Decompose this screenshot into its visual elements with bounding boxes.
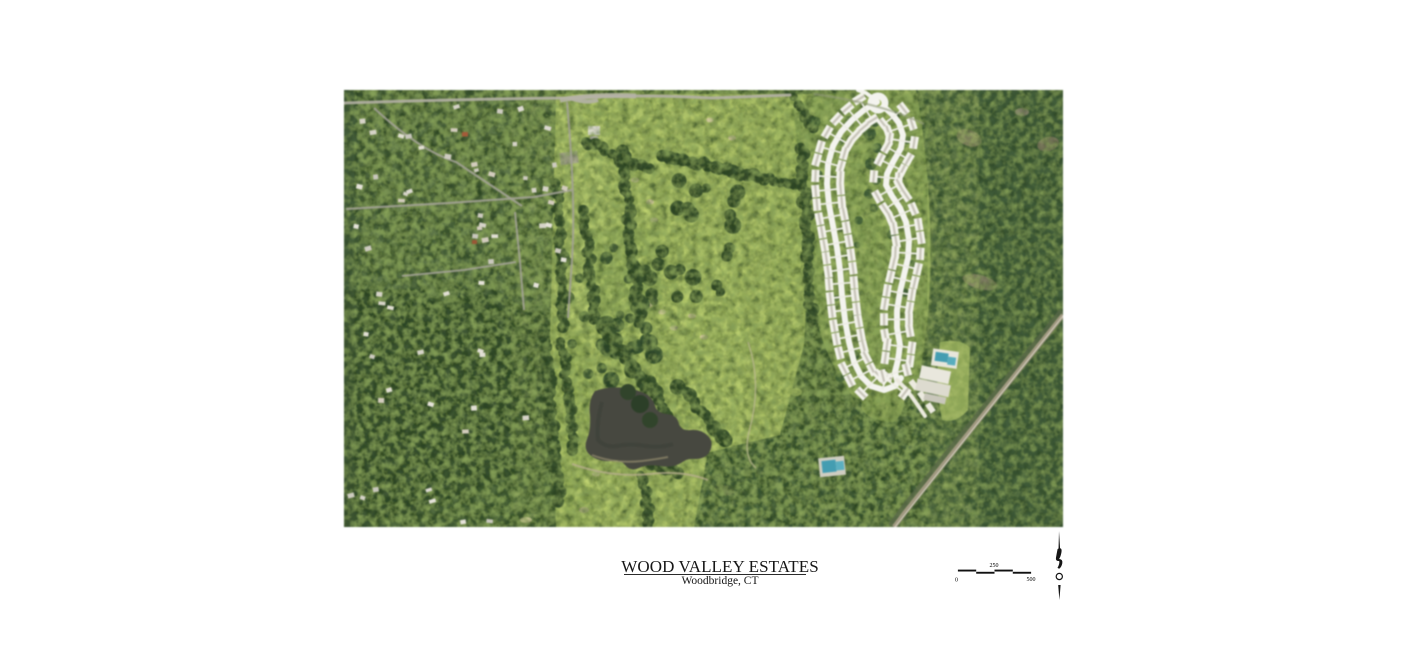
svg-text:500: 500 — [1027, 577, 1036, 583]
svg-text:0: 0 — [955, 578, 958, 584]
svg-text:250: 250 — [990, 563, 999, 569]
